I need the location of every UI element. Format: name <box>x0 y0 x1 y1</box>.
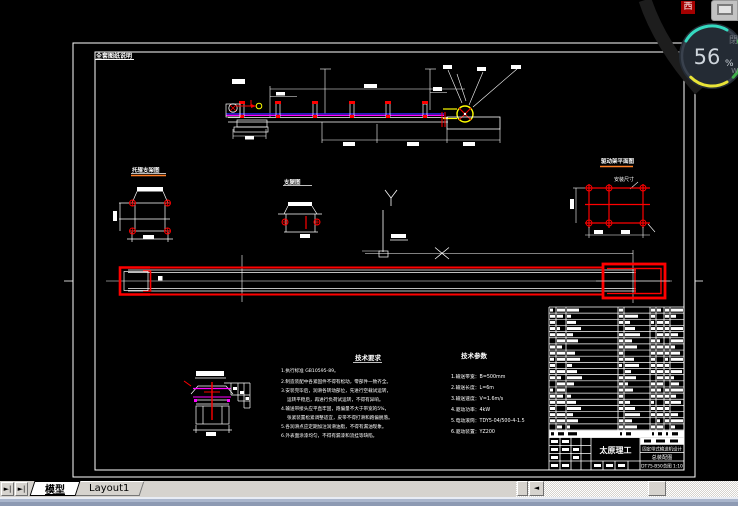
svg-text:运转平稳后，再进行负荷试运转，不得有异响。: 运转平稳后，再进行负荷试运转，不得有异响。 <box>287 396 383 403</box>
tab-scroll-left-button[interactable]: ►| <box>1 482 14 496</box>
window-monitor-icon[interactable] <box>711 0 738 21</box>
svg-text:4.驱动功率：4kW: 4.驱动功率：4kW <box>451 406 490 413</box>
svg-text:支腿图: 支腿图 <box>283 178 301 186</box>
svg-text:1.执行标准 GB10595-89。: 1.执行标准 GB10595-89。 <box>281 367 339 374</box>
scrollbar-thumb[interactable] <box>648 481 666 496</box>
svg-text:6.外表面涂漆均匀，不得有漏漆和流挂等缺陷。: 6.外表面涂漆均匀，不得有漏漆和流挂等缺陷。 <box>281 432 377 439</box>
section-leg: 支腿图 <box>278 178 322 238</box>
svg-text:5.电动滚筒：TDY5-04/500-4-1.5: 5.电动滚筒：TDY5-04/500-4-1.5 <box>451 417 525 424</box>
drive-station <box>596 264 670 298</box>
svg-text:2.制造装配中各紧固件不得有松动，零部件一致齐全。: 2.制造装配中各紧固件不得有松动，零部件一致齐全。 <box>281 378 391 385</box>
tech-parameters: 技术参数 1.输送带宽：B=500mm 2.输送长度：L=6m 3.输送速度：V… <box>451 351 525 435</box>
title-block: 太原理工 固定带式输送机设计 总装配图 DT75-B50总图 1:10 <box>549 438 684 471</box>
svg-text:安装尺寸: 安装尺寸 <box>614 176 634 183</box>
svg-text:1.输送带宽：B=500mm: 1.输送带宽：B=500mm <box>451 373 506 380</box>
drive-drum <box>442 106 500 129</box>
tab-layout1[interactable]: Layout1 <box>74 481 145 496</box>
monitor-screen-inner <box>719 6 731 13</box>
tab-model[interactable]: 模型 <box>30 481 81 496</box>
tab-scroll-right-button[interactable]: ►| <box>15 482 28 496</box>
svg-text:张紧装置松紧调整适宜，皮带不得打滑和跑偏脱落。: 张紧装置松紧调整适宜，皮带不得打滑和跑偏脱落。 <box>287 414 393 421</box>
sheet-top-label: 全套图纸说明 <box>95 52 134 60</box>
svg-text:全套图纸说明: 全套图纸说明 <box>95 52 132 60</box>
wye-symbol <box>362 190 633 259</box>
title-block-project: 固定带式输送机设计 <box>642 446 682 453</box>
tech-requirements: 技术要求 1.执行标准 GB10595-89。 2.制造装配中各紧固件不得有松动… <box>281 353 393 439</box>
title-block-drawing-name: 总装配图 <box>652 453 673 461</box>
status-strip <box>0 497 738 506</box>
svg-text:3.输送速度：V=1.6m/s: 3.输送速度：V=1.6m/s <box>451 395 504 402</box>
app-window: { "chrome": { "red_badge": "西", "zoom_pe… <box>0 0 738 506</box>
cad-drawing-canvas[interactable]: 全套图纸说明 <box>0 0 738 481</box>
tab-model-label: 模型 <box>45 481 65 496</box>
occluded-glyph-2: w <box>731 66 738 76</box>
zoom-percent-value: 56 <box>694 45 721 69</box>
detail-trough <box>184 371 250 436</box>
section-drive-frame: 驱动架平面图 安装尺寸 <box>570 157 655 238</box>
svg-text:驱动架平面图: 驱动架平面图 <box>601 157 635 165</box>
side-view <box>226 65 521 146</box>
svg-text:5.各润滑点应定期加注润滑油脂，不得有漏油现象。: 5.各润滑点应定期加注润滑油脂，不得有漏油现象。 <box>281 423 386 430</box>
section-roller-bracket: 托辊支架图 <box>113 166 173 242</box>
pane-splitter-handle[interactable] <box>517 481 528 496</box>
scroll-left-button[interactable]: ◄ <box>529 481 544 496</box>
parts-table <box>549 307 684 438</box>
svg-text:4.输送带接头应平直牢固，跑偏量不大于带宽的5%，: 4.输送带接头应平直牢固，跑偏量不大于带宽的5%， <box>281 405 389 412</box>
horizontal-scrollbar[interactable]: ◄ <box>516 481 738 497</box>
svg-text:技术参数: 技术参数 <box>461 351 488 360</box>
svg-text:3.安装完毕后，润滑各转动部位，先进行空载试运转，: 3.安装完毕后，润滑各转动部位，先进行空载试运转， <box>281 387 391 394</box>
title-block-company: 太原理工 <box>599 445 632 455</box>
plan-view <box>106 250 672 303</box>
tab-layout1-label: Layout1 <box>89 483 129 494</box>
occluded-glyph-1: 閉 <box>729 33 738 46</box>
ime-language-badge[interactable]: 西 <box>681 1 695 14</box>
wye-label <box>390 234 408 240</box>
svg-text:托辊支架图: 托辊支架图 <box>132 166 160 174</box>
svg-text:技术要求: 技术要求 <box>355 353 382 362</box>
svg-text:6.驱动装置：YZ200: 6.驱动装置：YZ200 <box>451 428 495 435</box>
svg-text:2.输送长度：L=6m: 2.输送长度：L=6m <box>451 384 494 391</box>
title-block-drawing-no: DT75-B50总图 1:10 <box>641 463 683 470</box>
